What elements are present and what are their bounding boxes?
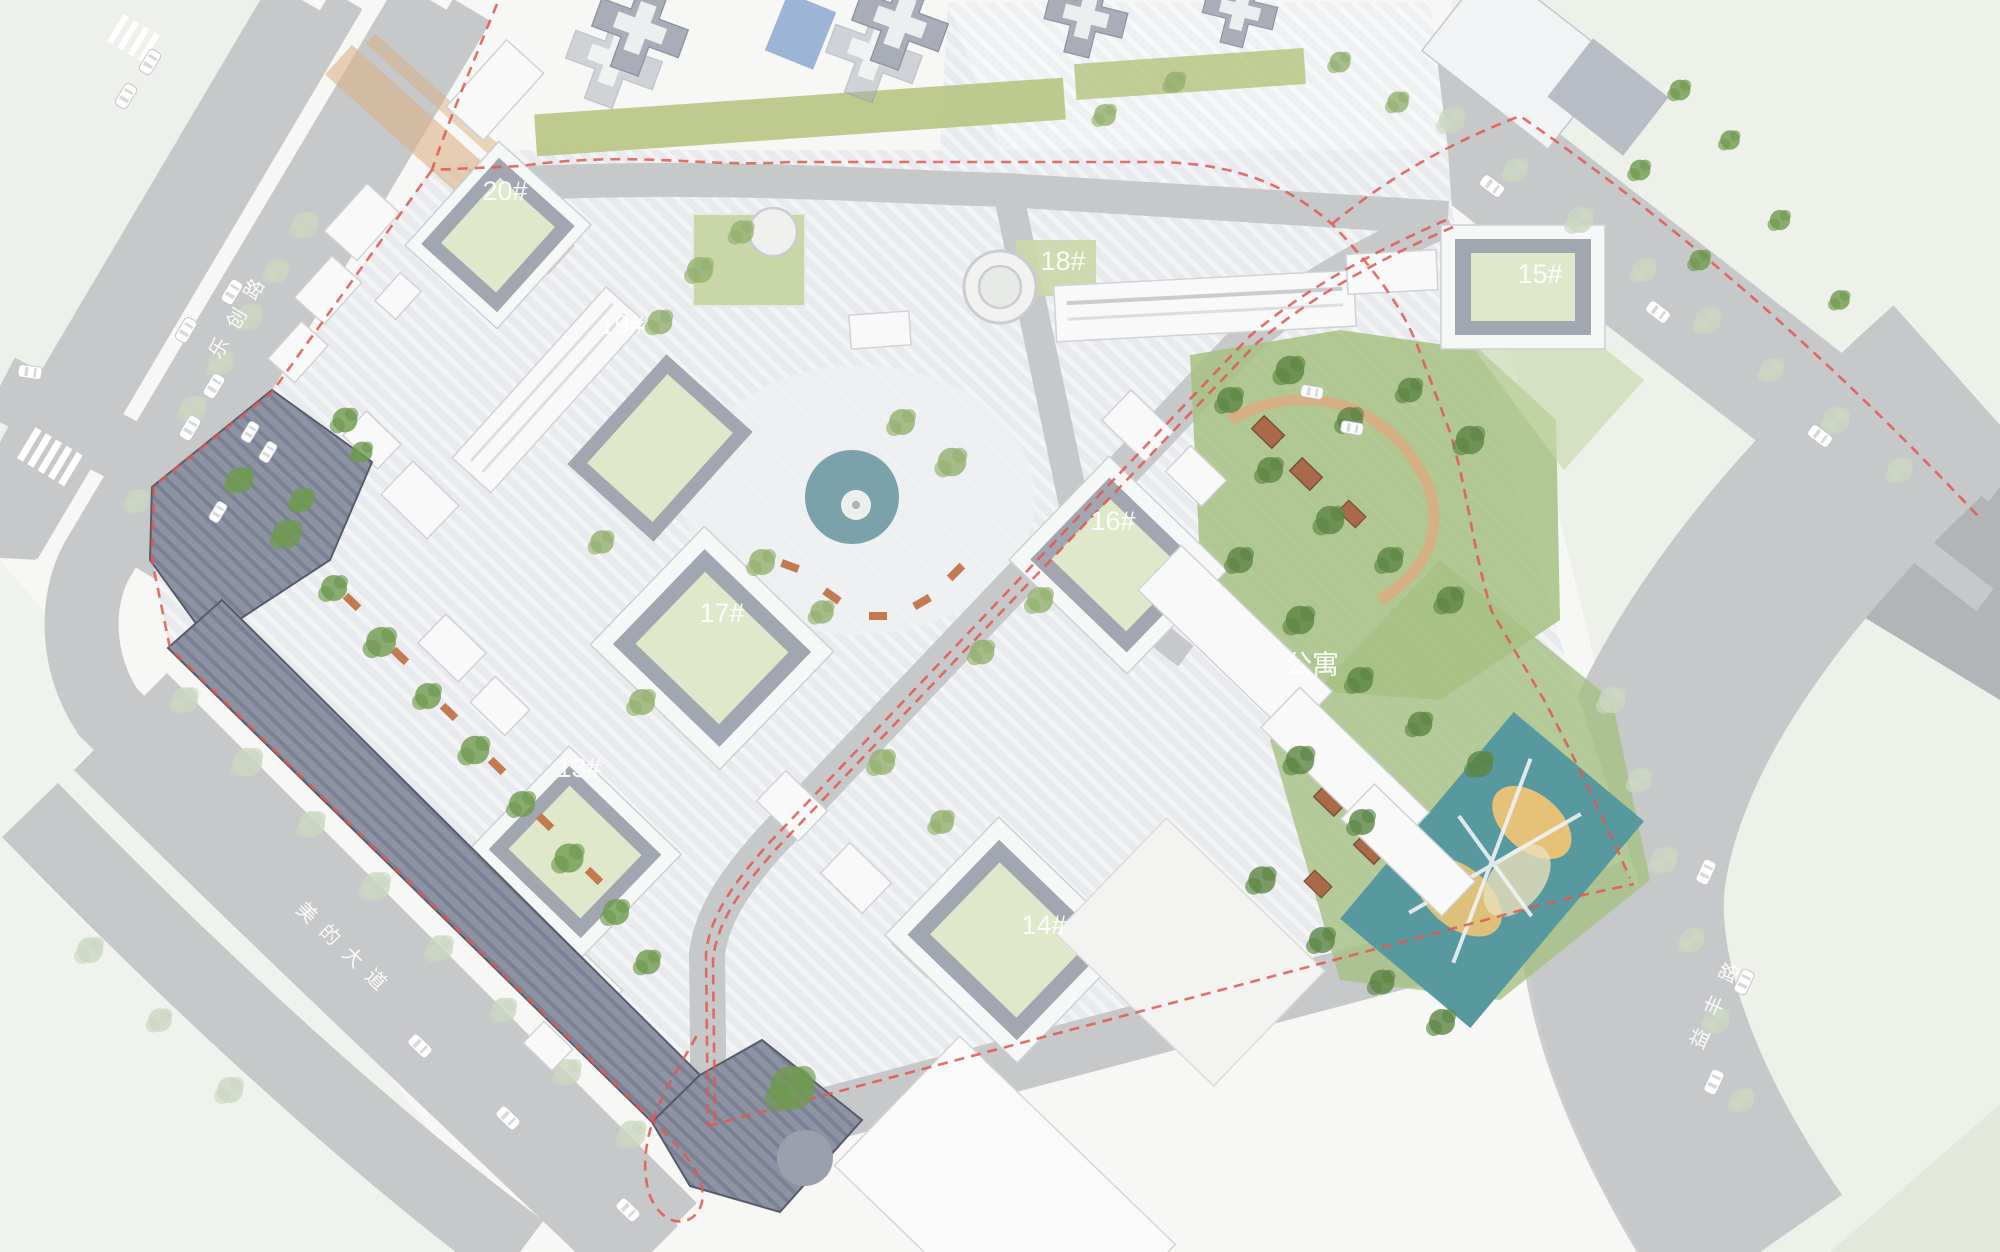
building-19-label: 19# (599, 310, 644, 340)
retail-block (849, 311, 911, 349)
building-15-label: 15# (1517, 259, 1562, 289)
fountain (805, 450, 899, 544)
site-plan-svg: 20# 19# 18# 15# 16# 17# 13# 14# 公寓 乐创路 美… (0, 0, 2000, 1252)
amphitheater-inner (979, 266, 1021, 308)
building-20-label: 20# (482, 176, 527, 206)
building-17-label: 17# (699, 598, 744, 628)
building-16-label: 16# (1090, 506, 1135, 536)
site-plan-canvas: 20# 19# 18# 15# 16# 17# 13# 14# 公寓 乐创路 美… (0, 0, 2000, 1252)
car-icon (18, 364, 43, 380)
building-13-label: 13# (556, 753, 601, 783)
building-14-label: 14# (1021, 910, 1066, 940)
highlight-plaza-circle (777, 1130, 833, 1186)
bench (869, 612, 887, 620)
building-18-label: 18# (1040, 246, 1085, 276)
apartment-label: 公寓 (1285, 650, 1339, 680)
fountain-sculpture (852, 501, 860, 509)
